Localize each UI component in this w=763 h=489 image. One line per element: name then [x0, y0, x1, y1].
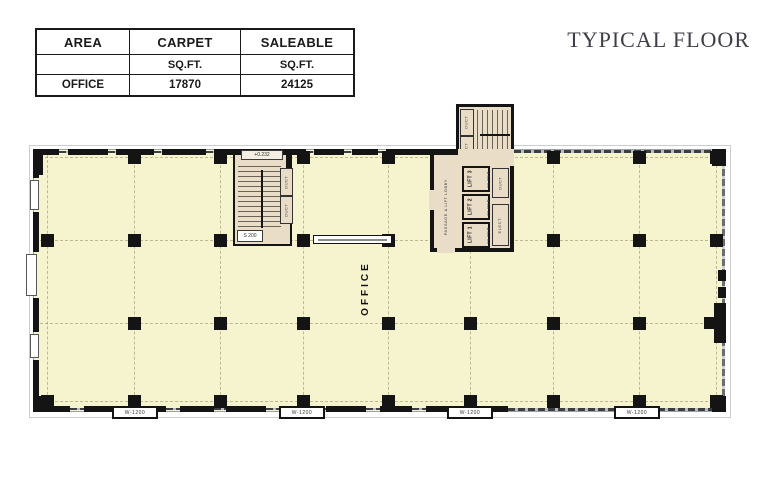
column-marker	[633, 151, 646, 164]
window-opening	[206, 151, 214, 153]
partition-counter	[313, 235, 392, 244]
window-opening	[70, 408, 84, 410]
window-opening	[366, 408, 380, 410]
column-marker	[128, 234, 141, 247]
page: AREA CARPET SALEABLE SQ.FT. SQ.FT. OFFIC…	[0, 0, 763, 489]
window-opening	[30, 180, 39, 210]
lift-1: LIFT 1 20 PER.	[462, 222, 490, 248]
office-zone-label: OFFICE	[340, 250, 390, 326]
window-opening	[108, 151, 116, 153]
core-right-wall	[510, 166, 514, 252]
wall-segment	[180, 406, 214, 412]
column-marker	[633, 317, 646, 330]
column-marker	[128, 317, 141, 330]
column-marker	[297, 151, 310, 164]
window-tag-1: W-1200	[112, 406, 158, 419]
core-lobby-label: PASSAGE & LIFT LOBBY	[432, 165, 460, 250]
column-marker	[41, 234, 54, 247]
window-opening	[412, 408, 426, 410]
column-marker	[382, 395, 395, 408]
column-marker	[214, 317, 227, 330]
column-marker	[710, 395, 723, 408]
wall-segment	[68, 149, 108, 155]
west-stair-treads	[238, 166, 281, 228]
west-stair-duct-2: DUCT	[280, 196, 293, 224]
window-opening	[59, 151, 68, 153]
t-column	[704, 317, 716, 329]
core-stair-duct-1: DUCT	[460, 109, 474, 136]
grid-line	[47, 155, 48, 405]
column-marker	[633, 234, 646, 247]
column-marker	[214, 234, 227, 247]
west-stair-spine	[261, 170, 263, 228]
grid-line	[553, 155, 554, 405]
wall-segment	[326, 406, 366, 412]
wall-segment	[226, 406, 266, 412]
column-marker	[297, 234, 310, 247]
column-marker	[382, 151, 395, 164]
column-marker	[547, 395, 560, 408]
grid-line	[134, 155, 135, 405]
floor-plan: +0.232 DUCT DUCT S 200 DUCT DUCT PASSAGE…	[0, 0, 763, 489]
window-opening	[344, 151, 352, 153]
wall-segment	[33, 298, 39, 332]
window-opening	[30, 334, 39, 358]
window-tag-4: W-1200	[614, 406, 660, 419]
column-marker	[214, 151, 227, 164]
core-top-lintel	[430, 149, 458, 155]
wall-segment	[314, 149, 344, 155]
lift-3: LIFT 3 20 PER.	[462, 166, 490, 192]
wall-segment	[33, 212, 39, 252]
column-marker	[214, 395, 227, 408]
west-stair-duct-1: DUCT	[280, 168, 293, 196]
window-bay	[26, 254, 37, 296]
west-stair-landing-tag: S 200	[237, 230, 263, 242]
column-marker	[128, 151, 141, 164]
column-marker	[710, 151, 723, 164]
west-stair-level-tag: +0.232	[241, 150, 283, 160]
wall-segment	[162, 149, 206, 155]
column-marker	[41, 395, 54, 408]
window-opening	[214, 408, 226, 410]
corner-column	[33, 149, 43, 175]
column-marker	[547, 151, 560, 164]
window-tag-3: W-1200	[447, 406, 493, 419]
wall-segment	[352, 149, 378, 155]
grid-line	[303, 155, 304, 405]
window-opening	[166, 408, 180, 410]
window-opening	[154, 151, 162, 153]
grid-line	[220, 155, 221, 405]
window-mark	[718, 287, 726, 298]
column-marker	[547, 317, 560, 330]
lift-2: LIFT 2 20 PER.	[462, 194, 490, 220]
curtain-wall-line	[514, 150, 725, 153]
column-marker	[547, 234, 560, 247]
core-elect-shaft: ELECT.	[492, 204, 509, 246]
column-marker	[464, 317, 477, 330]
core-duct-shaft: DUCT	[492, 168, 509, 198]
window-opening	[266, 408, 280, 410]
core-stair-spine	[480, 134, 510, 136]
grid-line	[716, 155, 717, 405]
grid-line	[40, 401, 718, 402]
window-tag-2: W-1200	[279, 406, 325, 419]
column-marker	[297, 317, 310, 330]
grid-line	[639, 155, 640, 405]
column-marker	[710, 234, 723, 247]
window-mark	[718, 270, 726, 281]
grid-line	[40, 157, 718, 158]
